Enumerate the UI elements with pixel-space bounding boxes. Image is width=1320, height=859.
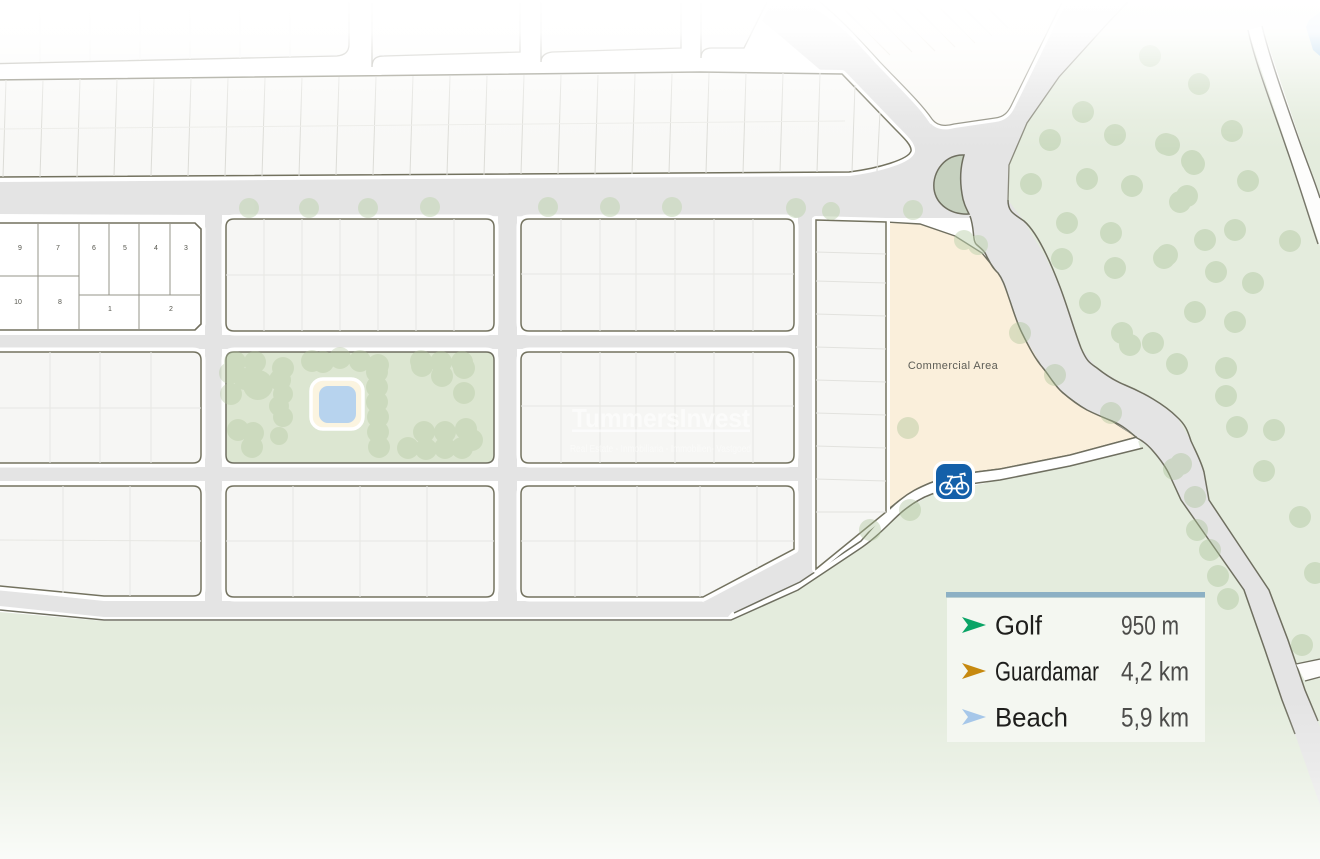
svg-text:4: 4 (154, 245, 158, 252)
svg-text:5,9 km: 5,9 km (1121, 703, 1189, 733)
svg-text:Commercial Area: Commercial Area (908, 360, 999, 372)
svg-text:TummersInvest: TummersInvest (572, 403, 750, 433)
svg-text:8: 8 (58, 299, 62, 306)
svg-text:4,2 km: 4,2 km (1121, 657, 1189, 687)
svg-text:10: 10 (14, 299, 22, 306)
svg-text:Golf: Golf (995, 611, 1043, 641)
svg-text:2: 2 (169, 306, 173, 313)
svg-text:9: 9 (18, 245, 22, 252)
svg-text:6: 6 (92, 245, 96, 252)
svg-text:950 m: 950 m (1121, 611, 1179, 641)
svg-text:Beach: Beach (995, 703, 1068, 733)
svg-text:3: 3 (184, 245, 188, 252)
svg-text:5: 5 (123, 245, 127, 252)
svg-text:Real Estate - Inmobiliaria - I: Real Estate - Inmobiliaria - Immobilien-… (570, 443, 751, 455)
svg-text:7: 7 (56, 245, 60, 252)
svg-text:Guardamar: Guardamar (995, 657, 1099, 687)
svg-text:1: 1 (108, 306, 112, 313)
